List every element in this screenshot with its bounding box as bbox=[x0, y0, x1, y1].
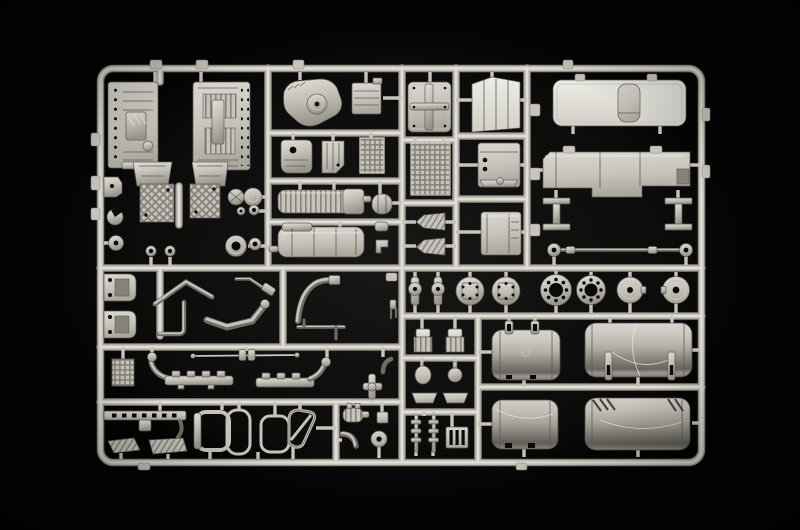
vignette bbox=[0, 0, 800, 530]
photo-stage bbox=[0, 0, 800, 530]
sprue-photo bbox=[0, 0, 800, 530]
